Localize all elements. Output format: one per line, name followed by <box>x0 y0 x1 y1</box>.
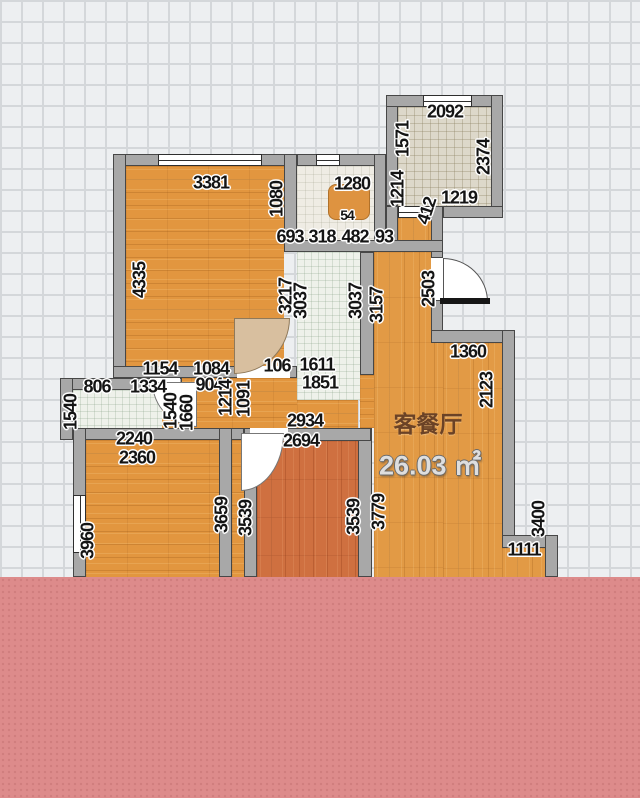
balcony-floor <box>398 107 491 206</box>
wall <box>545 535 558 577</box>
window <box>158 154 262 166</box>
kitchen-counter <box>328 184 370 220</box>
balcony-slider-door <box>398 206 431 218</box>
wall <box>297 154 386 166</box>
pink-overlay-mask <box>0 577 640 798</box>
wall <box>284 240 443 252</box>
hall-living-opening-floor <box>360 375 374 428</box>
wall <box>386 95 398 206</box>
wall <box>358 428 372 577</box>
entry-door-swing-arc <box>443 258 488 302</box>
wall <box>491 95 503 218</box>
door-opening <box>431 258 443 300</box>
room-area-label: 26.03 ㎡ <box>379 444 481 483</box>
wall <box>60 378 73 440</box>
bathroom-floor <box>73 390 162 428</box>
wall <box>219 428 232 577</box>
wall <box>284 154 297 252</box>
hallway-floor <box>297 252 360 400</box>
dimension-label: 3400 <box>529 501 550 537</box>
bedroom-bottomleft-floor <box>86 440 219 577</box>
living-room-floor-corner <box>502 548 545 577</box>
window <box>73 495 86 553</box>
room-name-label: 客餐厅 <box>394 405 463 439</box>
wall <box>443 206 503 218</box>
window <box>316 154 340 166</box>
entry-door-leaf <box>440 298 490 304</box>
wall <box>113 154 126 378</box>
wall <box>502 330 515 548</box>
wall <box>374 154 386 252</box>
balcony-opening <box>423 95 472 107</box>
wall <box>360 252 374 375</box>
